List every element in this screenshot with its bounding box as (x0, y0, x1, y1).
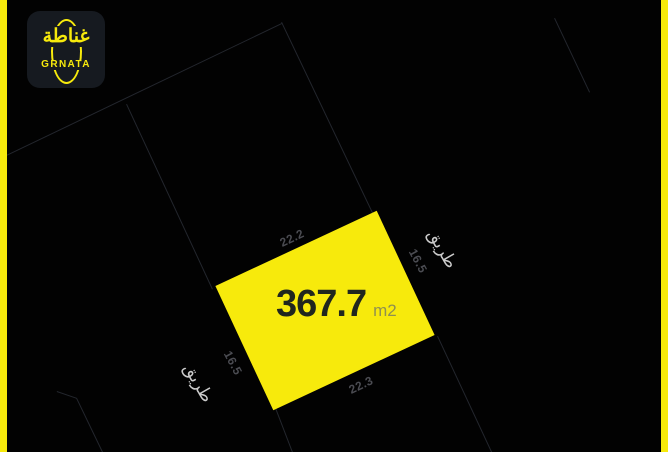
logo-latin-wordmark: GRNATA (27, 55, 105, 71)
parcel-boundary-line (437, 336, 492, 452)
parcel-boundary-line (554, 18, 590, 93)
plot-area-label: 367.7 m2 (276, 284, 397, 324)
parcel-boundary-line (57, 391, 77, 399)
parcel-boundary-line (126, 104, 213, 289)
left-yellow-border (0, 0, 7, 452)
dimension-right: 16.5 (406, 247, 430, 276)
area-unit: m2 (373, 301, 397, 321)
parcel-boundary-line (275, 408, 293, 452)
area-value: 367.7 (276, 284, 366, 324)
right-yellow-border (661, 0, 668, 452)
parcel-boundary-line (76, 398, 103, 452)
grnata-logo: غناطة GRNATA (27, 11, 105, 88)
dimension-bottom: 22.3 (347, 373, 376, 396)
logo-arabic-text: غناطة (40, 26, 93, 47)
plot-map-image: 367.7 m2 22.2 16.5 22.3 16.5 طريق طريق غ… (0, 0, 668, 452)
road-label-left: طريق (179, 360, 217, 406)
dimension-left: 16.5 (221, 349, 245, 378)
parcel-boundary-line (281, 22, 373, 214)
logo-arabic-wordmark: غناطة (27, 26, 105, 47)
logo-latin-text: GRNATA (40, 60, 92, 70)
